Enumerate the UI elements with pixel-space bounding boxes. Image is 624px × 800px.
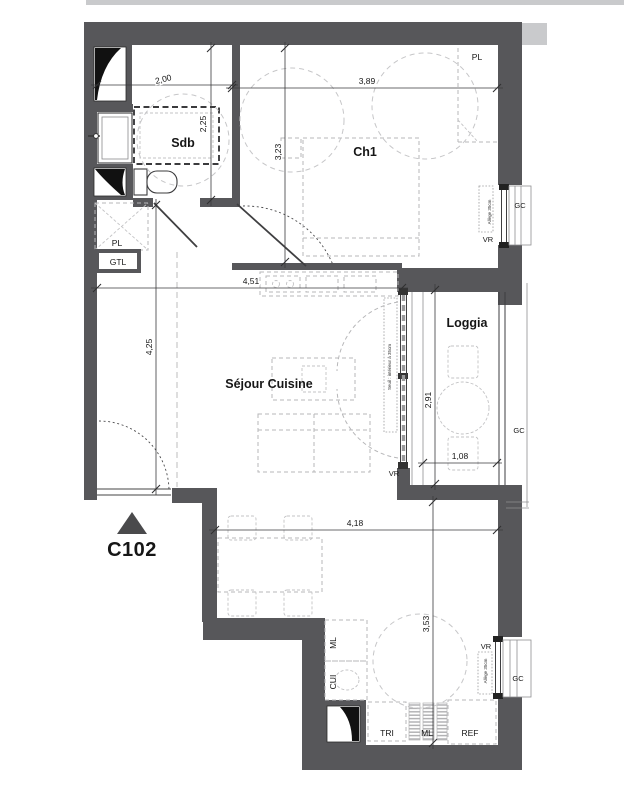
- wall-sejour-south: [203, 618, 325, 640]
- room-label-sejour: Séjour Cuisine: [225, 377, 313, 391]
- dim-text: 4,51: [243, 276, 260, 286]
- dimension-loggia-width: 1,08: [418, 451, 502, 467]
- wall-interior-sejour: [232, 263, 402, 270]
- kitchen-sink-icon: [335, 670, 359, 690]
- loggia-table: [437, 382, 489, 434]
- window-frame-end: [499, 242, 509, 248]
- wall-bottom: [302, 745, 522, 770]
- dimensions-group: 2,00 2,25 3,23 3,89 4,51 4,25: [91, 42, 503, 749]
- label-gc-kitchen: GC: [512, 674, 524, 683]
- label-vr-ch1: VR: [483, 235, 494, 244]
- sink: [98, 113, 132, 163]
- wall-loggia-bottom: [397, 485, 522, 500]
- dimension-ch1-height: 3,23: [273, 42, 289, 268]
- label-ml-upper: ML: [328, 637, 338, 649]
- dimension-kitchen-width: 4,18: [209, 518, 503, 534]
- label-gc-loggia: GC: [513, 426, 525, 435]
- floorplan-canvas: 2,00 2,25 3,23 3,89 4,51 4,25: [0, 0, 624, 800]
- nightstand: [281, 138, 301, 158]
- wall-sdb-south-a: [133, 198, 153, 207]
- room-label-loggia: Loggia: [447, 316, 489, 330]
- door-ch1-swing: [243, 206, 333, 265]
- unit-label: C102: [107, 539, 157, 561]
- door-ch1: [237, 204, 306, 266]
- label-vr-kitchen: VR: [481, 642, 492, 651]
- room-label-ch1: Ch1: [353, 145, 377, 159]
- dimension-sejour-width: 4,51: [91, 276, 408, 292]
- chair: [284, 590, 312, 616]
- door-entrance-swing: [99, 421, 169, 490]
- label-vr-sejour: VR: [389, 469, 400, 478]
- toilet-tank: [134, 169, 147, 195]
- unit-marker: C102: [107, 512, 157, 561]
- label-gtl: GTL: [110, 257, 127, 267]
- note-allege-kitchen: Allège 35cm: [483, 658, 488, 683]
- chair: [284, 516, 312, 540]
- dim-text: 2,00: [154, 72, 173, 86]
- floorplan-page: 2,00 2,25 3,23 3,89 4,51 4,25: [0, 0, 624, 800]
- toilet-bowl: [147, 171, 177, 193]
- label-pl-hall: PL: [112, 238, 123, 248]
- glazed-door-swing: [337, 389, 398, 458]
- dimension-loggia-height: 2,91: [423, 284, 439, 490]
- dim-text: 4,25: [144, 338, 154, 355]
- appliance-stripes-icon: [437, 703, 447, 740]
- wall-right-upper: [498, 22, 522, 185]
- label-pl-ch1: PL: [472, 52, 483, 62]
- note-allege-ch1: Allège 35cm: [487, 199, 492, 224]
- dim-text: 3,53: [421, 615, 431, 632]
- window-frame-end: [493, 636, 503, 642]
- door-sdb: [154, 203, 197, 247]
- label-ref: REF: [462, 728, 479, 738]
- window-frame-end: [398, 288, 408, 295]
- top-right-light-strip: [522, 23, 547, 45]
- wall-entry-stub: [172, 488, 217, 503]
- window-frame-end: [398, 462, 408, 469]
- label-cui: CUI: [328, 675, 338, 690]
- dim-text: 3,23: [273, 143, 283, 160]
- doors-group: [97, 203, 333, 495]
- loggia-chair: [448, 346, 478, 378]
- dim-text: 3,89: [359, 76, 376, 86]
- shutter-guide: [509, 186, 531, 245]
- label-ml-lower: ML: [421, 728, 433, 738]
- walls-group: [84, 22, 522, 770]
- wall-ch1-loggia: [397, 268, 498, 292]
- window-sejour-loggia: [337, 288, 408, 469]
- dim-text: 4,18: [347, 518, 364, 528]
- appliance-stripes-icon: [409, 703, 420, 740]
- counter-unit: [344, 276, 376, 292]
- top-light-strip: [86, 0, 624, 5]
- dining-table: [218, 538, 322, 592]
- dimension-hall-height: 4,25: [144, 199, 160, 495]
- wall-sejour-west: [202, 488, 217, 622]
- wall-sink-niche: [93, 104, 133, 112]
- faucet-knob-icon: [94, 134, 99, 139]
- dimension-sdb-height: 2,25: [198, 42, 215, 206]
- wall-top: [84, 22, 522, 45]
- room-label-sdb: Sdb: [171, 136, 195, 150]
- wall-sdb-south-b: [200, 198, 240, 207]
- wall-right-mid: [498, 245, 522, 305]
- chair: [228, 516, 256, 540]
- wall-right-lower-a: [498, 500, 522, 637]
- dim-text: 1,08: [452, 451, 469, 461]
- counter-sink: [306, 276, 338, 292]
- dimension-ch1-width: 3,89: [226, 76, 503, 92]
- dim-text: 2,91: [423, 391, 433, 408]
- entrance-triangle-icon: [117, 512, 147, 534]
- cooktop: [266, 276, 300, 292]
- window-frame-end: [493, 693, 503, 699]
- furniture-group: [218, 138, 496, 744]
- note-seuil: Seuil : intérieur à 35cm: [387, 344, 392, 390]
- label-gc-ch1: GC: [514, 201, 526, 210]
- chair: [228, 590, 256, 616]
- window-frame-end: [499, 184, 509, 190]
- label-tri: TRI: [380, 728, 394, 738]
- wall-kitchen-left: [302, 622, 325, 745]
- dim-text: 2,25: [198, 115, 208, 132]
- wall-sdb-ch1: [232, 45, 240, 205]
